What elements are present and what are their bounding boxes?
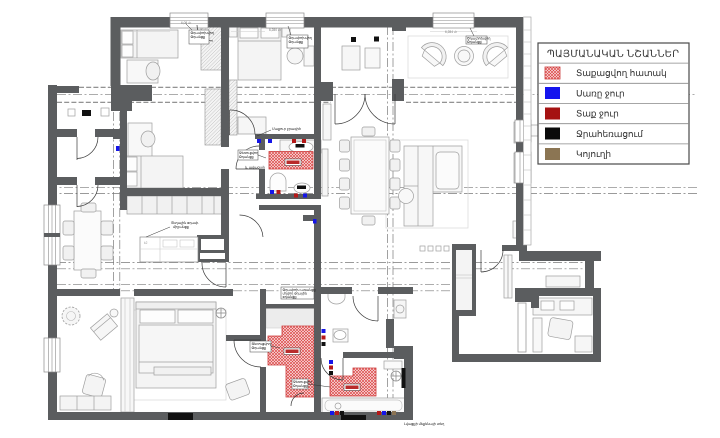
svg-text:Մաքուր ջրագիծ: Մաքուր ջրագիծ (272, 127, 301, 131)
svg-text:օդանցք: օդանցք (283, 295, 297, 299)
svg-text:և ավազան: և ավազան (245, 166, 265, 170)
svg-text:Օդանցք: Օդանցք (191, 35, 206, 39)
svg-text:Կոյուղի: Կոյուղի (576, 149, 611, 159)
svg-text:k2: k2 (144, 241, 148, 245)
svg-text:Օդանցք: Օդանցք (239, 155, 254, 159)
svg-text:Ջրահեռացում: Ջրահեռացում (576, 129, 643, 139)
svg-text:6,284 մ²: 6,284 մ² (445, 30, 457, 34)
svg-text:Օդանցք: Օդանցք (293, 384, 308, 388)
svg-text:6,280 մ²: 6,280 մ² (269, 28, 281, 32)
svg-text:միջանցք: միջանցք (173, 225, 189, 229)
svg-text:Օդանցք: Օդանցք (467, 40, 482, 44)
svg-text:Լվացքի մեքենայի տեղ: Լվացքի մեքենայի տեղ (404, 422, 444, 426)
svg-text:Տաքացվող հատակ: Տաքացվող հատակ (576, 68, 667, 78)
svg-text:Սառը ջուր: Սառը ջուր (576, 88, 625, 98)
svg-text:ՊԱՅՄԱՆԱԿԱՆ ՆՇԱՆՆԵՐ: ՊԱՅՄԱՆԱԿԱՆ ՆՇԱՆՆԵՐ (547, 49, 679, 60)
svg-text:Օդանցք: Օդանցք (289, 40, 304, 44)
svg-text:Տաք ջուր: Տաք ջուր (576, 109, 619, 119)
svg-text:Օդանցք: Օդանցք (252, 346, 267, 350)
svg-text:6,08 մ²: 6,08 մ² (181, 21, 191, 25)
